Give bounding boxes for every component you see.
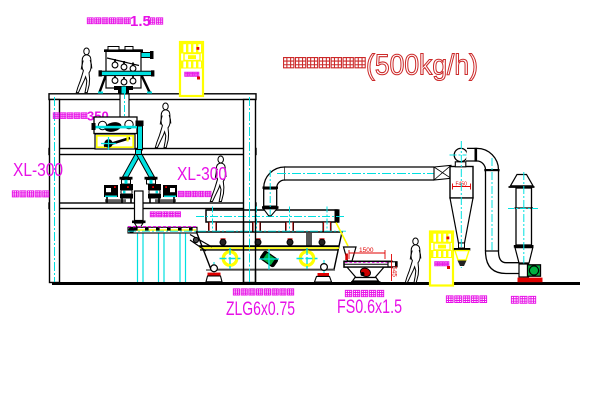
svg-text:ZLG6x0.75: ZLG6x0.75 (226, 299, 295, 320)
svg-text:(500kg/h): (500kg/h) (366, 50, 478, 82)
svg-text:1500: 1500 (359, 247, 374, 254)
svg-text:1.5: 1.5 (130, 13, 151, 30)
svg-text:XL-300: XL-300 (13, 160, 63, 180)
svg-text:XL-300: XL-300 (177, 164, 227, 184)
svg-text:545: 545 (391, 266, 398, 277)
svg-text:FS0.6x1.5: FS0.6x1.5 (337, 297, 402, 318)
